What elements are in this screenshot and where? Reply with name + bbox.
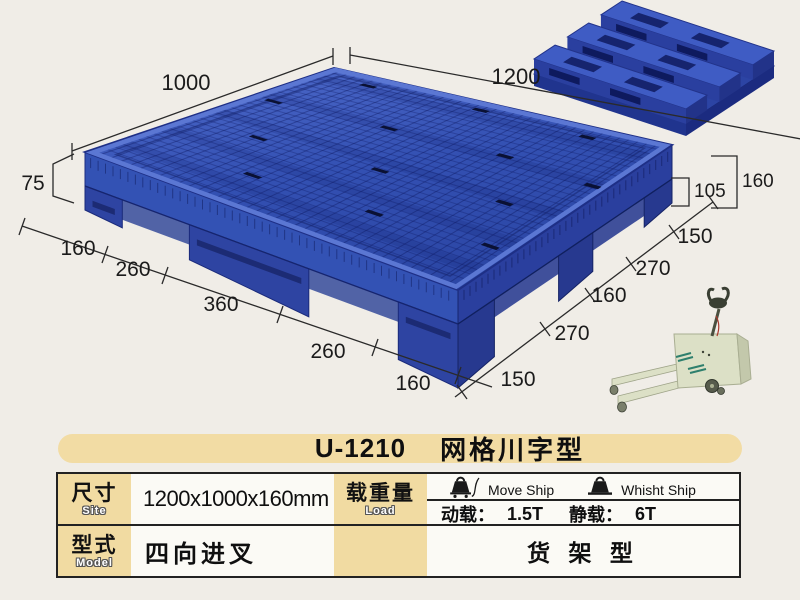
dim-right-chain-2: 160 bbox=[591, 284, 626, 307]
dim-left-chain-1: 260 bbox=[115, 258, 150, 281]
pallet-diagram: 1000 1200 75 105 160 160 260 360 260 160… bbox=[0, 0, 800, 430]
static-load-value: 6T bbox=[635, 504, 656, 525]
dim-label-75: 75 bbox=[21, 172, 44, 195]
dynamic-load-label: 动载： bbox=[441, 501, 495, 527]
model-code: U-1210 bbox=[315, 433, 406, 464]
whisht-ship-label: Whisht Ship bbox=[621, 482, 696, 498]
load-type-row: Move Ship Whisht Ship bbox=[427, 474, 739, 501]
model-value: 四向进叉 bbox=[145, 534, 257, 569]
model-label-cell: 型式 Model bbox=[58, 526, 131, 576]
dim-left-chain-4: 160 bbox=[395, 372, 430, 395]
dim-right-chain-1: 270 bbox=[554, 322, 589, 345]
title-bar: U-1210 网格川字型 bbox=[58, 434, 742, 463]
dim-left-chain-3: 260 bbox=[310, 340, 345, 363]
dynamic-load-value: 1.5T bbox=[507, 504, 543, 525]
dim-label-160-right: 160 bbox=[742, 171, 774, 192]
static-load-label: 静载： bbox=[569, 501, 623, 527]
load-label-cell: 载重量 Load bbox=[334, 474, 427, 526]
dim-label-1000: 1000 bbox=[162, 70, 211, 95]
product-name: 网格川字型 bbox=[440, 430, 585, 467]
product-sheet: 1000 1200 75 105 160 160 260 360 260 160… bbox=[0, 0, 800, 600]
model-label-en: Model bbox=[76, 557, 113, 569]
rack-type: 货 架 型 bbox=[527, 534, 639, 568]
whisht-ship-item: Whisht Ship bbox=[582, 474, 696, 498]
dim-right-chain-0: 150 bbox=[500, 368, 535, 391]
size-label-cn: 尺寸 bbox=[72, 482, 118, 505]
load-values-row: 动载： 1.5T 静载： 6T bbox=[427, 501, 739, 527]
rack-type-cell: 货 架 型 bbox=[427, 526, 739, 576]
dim-right-chain-3: 270 bbox=[635, 257, 670, 280]
weight-icon bbox=[582, 474, 618, 498]
dim-label-105: 105 bbox=[694, 181, 726, 202]
move-ship-label: Move Ship bbox=[488, 482, 554, 498]
model-label-cn: 型式 bbox=[72, 534, 118, 557]
size-value: 1200x1000x160mm bbox=[143, 486, 329, 512]
dim-right-chain-4: 150 bbox=[677, 225, 712, 248]
empty-tan-cell bbox=[334, 526, 427, 576]
size-label-cell: 尺寸 Site bbox=[58, 474, 131, 526]
dim-label-1200: 1200 bbox=[492, 64, 541, 89]
inset-pallet-bottom-view bbox=[534, 1, 774, 136]
move-ship-item: Move Ship bbox=[441, 474, 554, 498]
size-label-en: Site bbox=[82, 505, 106, 517]
pallet-truck-illustration bbox=[610, 288, 751, 412]
weight-on-cart-icon bbox=[441, 474, 485, 498]
dim-left-chain-0: 160 bbox=[60, 237, 95, 260]
load-label-en: Load bbox=[365, 505, 395, 517]
load-label-cn: 载重量 bbox=[346, 482, 415, 505]
model-value-cell: 四向进叉 bbox=[131, 526, 334, 576]
spec-table: 尺寸 Site 1200x1000x160mm 载重量 Load bbox=[56, 472, 741, 578]
size-value-cell: 1200x1000x160mm bbox=[131, 474, 334, 526]
load-detail-cell: Move Ship Whisht Ship 动载： 1.5T 静载： 6T bbox=[427, 474, 739, 526]
dim-left-chain-2: 360 bbox=[203, 293, 238, 316]
